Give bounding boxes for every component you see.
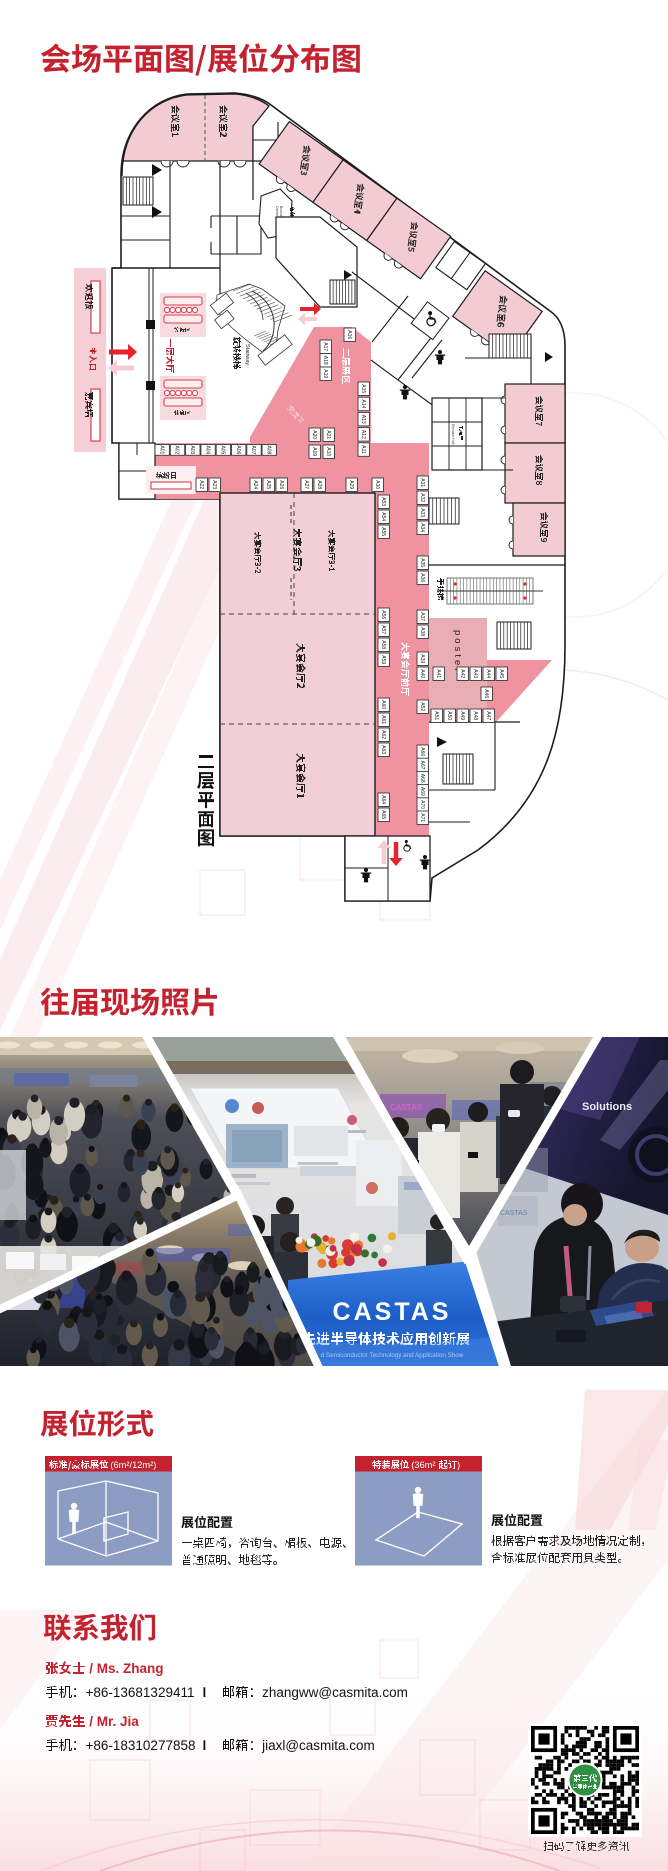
svg-text:A67: A67 [419, 760, 425, 769]
svg-text:A30: A30 [374, 480, 380, 489]
svg-text:Elevator Hall: Elevator Hall [451, 424, 455, 445]
svg-text:A05: A05 [220, 445, 226, 454]
svg-text:/ Ms. Zhang: / Ms. Zhang [89, 1661, 163, 1676]
svg-text:+86-13681329411: +86-13681329411 [86, 1685, 195, 1700]
svg-text:A18: A18 [322, 356, 328, 365]
svg-text:zhangww@casmita.com: zhangww@casmita.com [262, 1685, 408, 1700]
svg-text:A37: A37 [419, 612, 425, 621]
svg-text:A47: A47 [485, 711, 491, 720]
svg-text:+86-18310277858: +86-18310277858 [86, 1738, 196, 1753]
svg-text:A33: A33 [419, 508, 425, 517]
svg-text:A32: A32 [419, 493, 425, 502]
svg-text:A54: A54 [380, 512, 386, 521]
svg-text:A58: A58 [380, 640, 386, 649]
svg-text:A38: A38 [419, 627, 425, 636]
svg-text:A29: A29 [348, 480, 354, 489]
svg-text:A19: A19 [322, 369, 328, 378]
svg-text:A55: A55 [380, 527, 386, 536]
svg-text:A70: A70 [419, 800, 425, 809]
svg-text:A24: A24 [252, 480, 258, 489]
svg-text:A02: A02 [174, 445, 180, 454]
svg-text:A52: A52 [419, 702, 425, 711]
svg-text:A43: A43 [472, 669, 478, 678]
svg-text:A50: A50 [446, 711, 452, 720]
svg-text:A64: A64 [380, 795, 386, 804]
svg-text:A20: A20 [311, 430, 317, 439]
svg-text:A07: A07 [250, 445, 256, 454]
svg-text:A39: A39 [419, 654, 425, 663]
svg-text:A10: A10 [325, 447, 331, 456]
svg-text:A62: A62 [380, 730, 386, 739]
svg-text:): ) [457, 1460, 460, 1470]
svg-text:A56: A56 [380, 610, 386, 619]
svg-text:A42: A42 [459, 669, 465, 678]
svg-text:A03: A03 [189, 445, 195, 454]
svg-text:A01: A01 [158, 445, 164, 454]
svg-text:A44: A44 [485, 669, 491, 678]
svg-text:jiaxl@casmita.com: jiaxl@casmita.com [261, 1738, 375, 1753]
svg-text:A68: A68 [419, 774, 425, 783]
svg-text:A49: A49 [459, 711, 465, 720]
svg-text:A60: A60 [380, 700, 386, 709]
svg-text:Center: Center [275, 206, 279, 217]
svg-text:A17: A17 [322, 342, 328, 351]
svg-text:A16: A16 [346, 330, 352, 339]
svg-text:A21: A21 [325, 430, 331, 439]
svg-text:A63: A63 [380, 745, 386, 754]
svg-text:A46: A46 [483, 689, 489, 698]
svg-text:A04: A04 [204, 445, 210, 454]
svg-text:A28: A28 [316, 480, 322, 489]
svg-text:/ Mr. Jia: / Mr. Jia [89, 1714, 139, 1729]
svg-text:A13: A13 [360, 415, 366, 424]
svg-text:A08: A08 [265, 445, 271, 454]
svg-text:A06: A06 [235, 445, 241, 454]
svg-text:A48: A48 [472, 711, 478, 720]
svg-text:A65: A65 [380, 810, 386, 819]
svg-text:A69: A69 [419, 787, 425, 796]
svg-text:Solutions: Solutions [582, 1101, 632, 1113]
svg-text:A36: A36 [419, 573, 425, 582]
svg-text:(36m²: (36m² [411, 1460, 435, 1470]
svg-text:A34: A34 [419, 523, 425, 532]
svg-text:A45: A45 [498, 669, 504, 678]
svg-text:(6m²/12m²): (6m²/12m²) [110, 1460, 156, 1470]
svg-text:A40: A40 [419, 669, 425, 678]
svg-text:Stairway: Stairway [244, 344, 250, 365]
svg-text:A15: A15 [360, 384, 366, 393]
svg-text:A11: A11 [360, 445, 366, 454]
svg-text:CASTAS: CASTAS [333, 1298, 452, 1326]
svg-text:A12: A12 [360, 430, 366, 439]
svg-text:A61: A61 [380, 715, 386, 724]
svg-text:CASTAS: CASTAS [390, 1103, 423, 1112]
svg-text:A35: A35 [419, 558, 425, 567]
svg-text:A53: A53 [380, 497, 386, 506]
svg-text:A66: A66 [419, 747, 425, 756]
svg-text:A71: A71 [419, 813, 425, 822]
svg-text:A27: A27 [303, 480, 309, 489]
svg-text:A59: A59 [380, 655, 386, 664]
svg-text:A22: A22 [198, 480, 204, 489]
svg-text:A26: A26 [278, 480, 284, 489]
svg-text:CASTAS: CASTAS [500, 1210, 528, 1217]
svg-text:A23: A23 [211, 480, 217, 489]
svg-text:A31: A31 [419, 478, 425, 487]
svg-text:A41: A41 [435, 669, 441, 678]
svg-text:A51: A51 [433, 711, 439, 720]
svg-text:A57: A57 [380, 625, 386, 634]
svg-text:A09: A09 [311, 447, 317, 456]
svg-text:A25: A25 [265, 480, 271, 489]
svg-text:A14: A14 [360, 399, 366, 408]
